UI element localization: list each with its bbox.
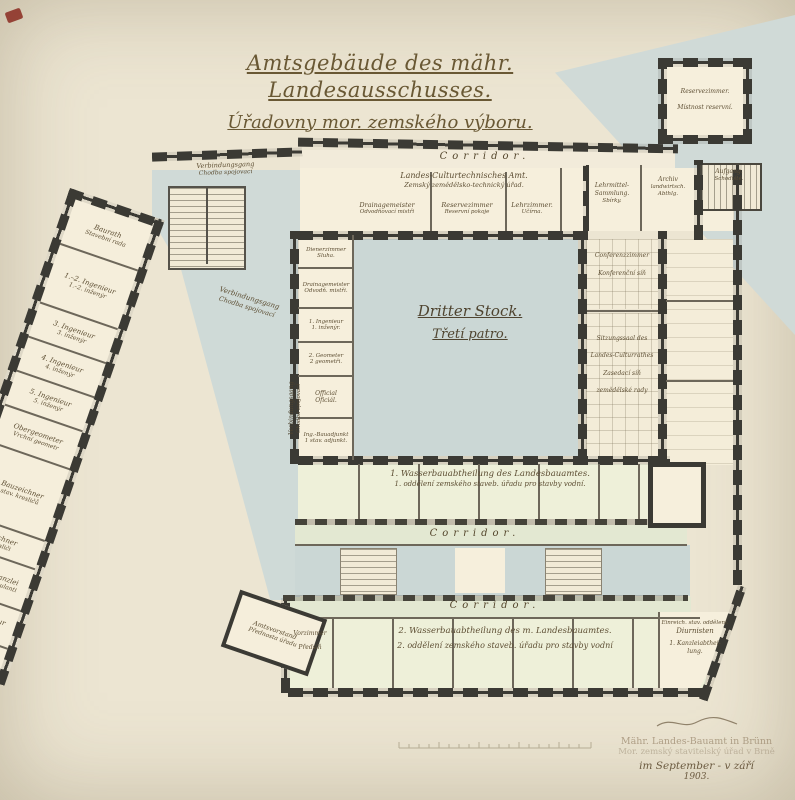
east-rooms-column — [666, 239, 733, 465]
room-label-de: Official — [315, 390, 337, 397]
corridor-label-bottom: Corridor. — [420, 599, 570, 612]
room-geometer2: 2. Geometer 2 geometři. — [298, 343, 354, 377]
conference-label-de: Conferenzzimmer — [586, 252, 658, 260]
gang-label-vertical-cz: Chodba spojovací — [296, 268, 302, 433]
room-label-cz: Sbírky. — [587, 198, 637, 205]
stair-label-de: Aufgang. — [700, 168, 758, 176]
room-archiv: Archiv landwirtsch. Abthlg. — [644, 176, 692, 198]
hall-line2: Landes-Culturrathes — [586, 347, 658, 364]
room-lehrzimmer: Lehrzimmer. Učírna. — [507, 201, 557, 217]
main-courtyard — [354, 239, 578, 456]
northwest-staircase — [168, 186, 246, 270]
annex-label: Reservezimmer. Místnost reservní. — [668, 88, 742, 112]
room-label-cz: Oficiál. — [315, 397, 337, 404]
room-label-cz: Odvodň. mistři. — [304, 288, 347, 294]
title-czech: Úřadovny mor. zemského výboru. — [150, 111, 610, 134]
band2-de: 2. Wasserbauabtheilung des m. Landesbaua… — [340, 626, 670, 637]
room-official: Official Oficiál. — [298, 377, 354, 419]
partition-east-2 — [666, 380, 733, 382]
band2-label: 2. Wasserbauabtheilung des m. Landesbaua… — [340, 626, 670, 651]
office-heading: Landes-Culturtechnisches Amt. Zemský zem… — [345, 171, 583, 190]
vorzimmer-cz: Předsíň — [289, 644, 331, 652]
signature-scribble — [652, 714, 742, 732]
council-hall-label: Sitzungssaal des Landes-Culturrathes Zas… — [586, 330, 658, 400]
room-drainagemeister: Drainagemeister Odvodňovací mistři — [347, 201, 427, 217]
annex-wall-top — [658, 58, 752, 67]
hall-line4: zemědělské rady — [586, 382, 658, 399]
floor-label-de: Dritter Stock. — [395, 302, 545, 322]
south-staircase-east — [545, 548, 602, 595]
inner-west-rooms: Dienerzimmer Sluha. Drainagemeister Odvo… — [298, 239, 354, 456]
room-ne-stair-label: Aufgang. Schodiště. — [700, 168, 758, 183]
band2-cz: 2. oddělení zemského staveb. úřadu pro s… — [340, 641, 670, 651]
conference-label: Conferenzzimmer Konferenční síň — [586, 252, 658, 278]
room-label-cz: Učírna. — [507, 209, 557, 216]
office-heading-cz: Zemský zemědělsko-technický úřad. — [345, 181, 583, 189]
archiv-line3: Abthlg. — [644, 191, 692, 198]
vorzimmer-label: Vorzimmer Předsíň — [289, 630, 331, 652]
stamp-line2: Mor. zemský stavitelský úřad v Brně — [598, 747, 795, 757]
room-label-de: Lehrmittel- Sammlung. — [587, 182, 637, 198]
room-drainage2: Drainagemeister Odvodň. mistři. — [298, 269, 354, 309]
room-reservezimmer: Reservezimmer Reservní pokoje — [432, 201, 502, 217]
room-diener: Dienerzimmer Sluha. — [298, 239, 354, 269]
se-rooms-label: Einreich. stav. oddělení. Diurnisten 1. … — [660, 620, 730, 656]
office-stamp: Mähr. Landes-Bauamt in Brünn Mor. zemský… — [598, 714, 795, 782]
gang-label-vertical-de: Verbindungsgang — [289, 260, 296, 435]
annex-wall-bottom — [658, 135, 752, 144]
conference-hall-partition — [586, 310, 658, 312]
vorzimmer-de: Vorzimmer — [289, 630, 331, 638]
stamp-line3: im September - v září — [598, 760, 795, 772]
stamp-line4: 1903. — [598, 772, 795, 782]
room-label-cz: Reservní pokoje — [432, 209, 502, 216]
wall-east — [733, 165, 742, 585]
sheet-title: Amtsgebäude des mähr. Landesausschusses.… — [150, 50, 610, 134]
annex-label-cz: Místnost reservní. — [668, 104, 742, 112]
partition-bot-1 — [332, 618, 334, 688]
room-lehrmittel: Lehrmittel- Sammlung. Sbírky. — [587, 182, 637, 205]
wall-south — [288, 688, 708, 697]
stair-label-cz: Schodiště. — [700, 176, 758, 183]
red-corner-mark — [5, 8, 24, 24]
se-line3: 1. Kanzleiabthei- — [660, 640, 730, 648]
room-label-cz: Sluha. — [317, 253, 335, 259]
line-south-court-north — [295, 544, 687, 546]
room-label-cz: 1 stav. adjunkt. — [305, 438, 347, 444]
annex-label-de: Reservezimmer. — [668, 88, 742, 96]
small-dark-chamber — [648, 462, 706, 528]
floor-label: Dritter Stock. Třetí patro. — [395, 302, 545, 343]
conference-label-cz: Konferenční síň — [586, 270, 658, 278]
se-line2: Diurnisten — [660, 627, 730, 636]
band1-de: 1. Wasserbauabtheilung des Landesbauamte… — [325, 469, 655, 480]
hall-line1: Sitzungssaal des — [586, 330, 658, 347]
stamp-line1: Mähr. Landes-Bauamt in Brünn — [598, 736, 795, 747]
line-bottom-rooms-top — [288, 617, 700, 619]
partition-top-5 — [640, 165, 642, 231]
archiv-line1: Archiv — [644, 176, 692, 184]
south-staircase-west — [340, 548, 397, 595]
corridor-label-top: Corridor. — [410, 150, 560, 163]
title-german: Amtsgebäude des mähr. Landesausschusses. — [150, 50, 610, 105]
partition-east-1 — [666, 300, 733, 302]
band1-label: 1. Wasserbauabtheilung des Landesbauamte… — [325, 469, 655, 489]
room-label-cz: Odvodňovací mistři — [347, 209, 427, 216]
band1-cz: 1. oddělení zemského staveb. úřadu pro s… — [325, 480, 655, 489]
floor-label-cz: Třetí patro. — [395, 327, 545, 344]
scale-bar — [395, 736, 595, 756]
south-strip-landing — [455, 548, 505, 593]
room-label-cz: 2 geometři. — [310, 359, 342, 365]
corridor-label-middle: Corridor. — [400, 527, 550, 540]
annex-wall-left — [658, 58, 667, 144]
se-line1: Einreich. stav. oddělení. — [660, 620, 730, 627]
staircase-divider — [206, 188, 208, 264]
wall-mid-corridor-north — [295, 519, 685, 525]
wall-rightwing-east — [658, 231, 667, 464]
office-heading-de: Landes-Culturtechnisches Amt. — [345, 171, 583, 181]
room-label-cz: 1. inženýr. — [312, 325, 341, 331]
hall-line3: Zasedací síň — [586, 365, 658, 382]
annex-wall-right — [743, 58, 752, 144]
west-wing: Baurath Stavební rada 1.–2. Ingenieur 1.… — [0, 188, 165, 686]
archiv-line2: landwirtsch. — [644, 184, 692, 191]
se-line4: lung. — [660, 648, 730, 656]
room-bauadjunkt: Ing.-Bauadjunkt 1 stav. adjunkt. — [298, 419, 354, 456]
floor-plan-sheet: Amtsgebäude des mähr. Landesausschusses.… — [0, 0, 795, 800]
